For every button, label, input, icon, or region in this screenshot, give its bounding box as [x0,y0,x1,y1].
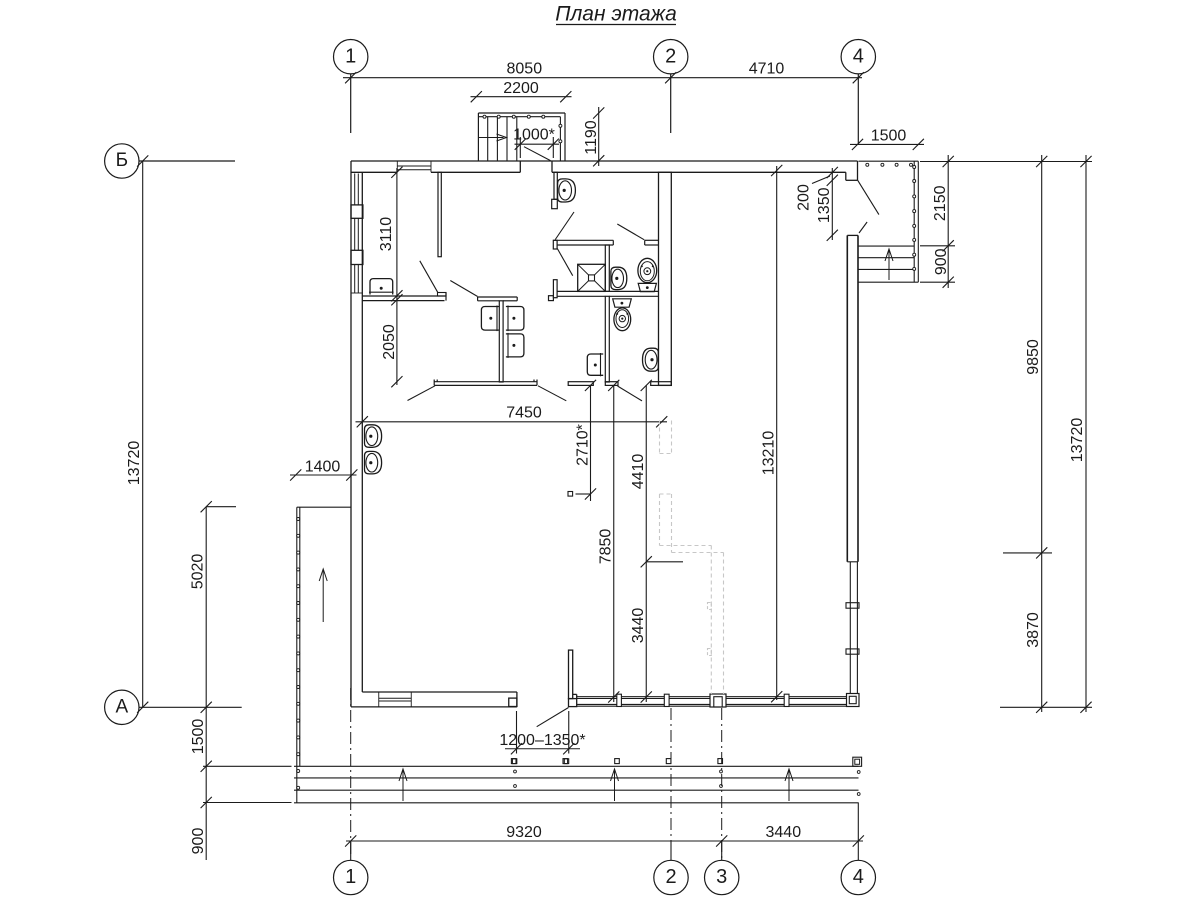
svg-text:А: А [115,697,128,718]
svg-text:1400: 1400 [305,459,341,476]
svg-text:1000*: 1000* [513,126,555,143]
svg-text:3870: 3870 [1025,612,1042,648]
svg-text:9850: 9850 [1025,339,1042,375]
svg-text:4710: 4710 [749,61,785,78]
svg-text:900: 900 [933,248,950,275]
svg-text:3440: 3440 [630,608,647,644]
svg-text:4: 4 [853,45,864,67]
svg-text:1: 1 [345,866,356,888]
svg-text:9320: 9320 [506,824,542,841]
svg-text:4410: 4410 [630,454,647,490]
svg-text:200: 200 [796,184,813,211]
svg-text:8050: 8050 [507,61,543,78]
svg-text:1350: 1350 [816,187,833,223]
svg-text:План этажа: План этажа [555,3,677,26]
svg-text:1500: 1500 [190,719,207,755]
svg-text:5020: 5020 [190,554,207,590]
svg-text:1: 1 [345,45,356,67]
svg-text:2: 2 [665,45,676,67]
svg-text:2: 2 [665,866,676,888]
svg-text:7450: 7450 [506,405,542,422]
svg-text:13720: 13720 [126,441,143,486]
svg-text:1200–1350*: 1200–1350* [499,732,585,749]
svg-text:900: 900 [190,828,207,855]
svg-text:7850: 7850 [598,529,615,565]
svg-text:13210: 13210 [760,431,777,476]
svg-text:3110: 3110 [378,217,395,252]
svg-text:Б: Б [116,150,128,171]
svg-text:4: 4 [853,866,864,888]
svg-text:1190: 1190 [583,120,600,155]
svg-text:3440: 3440 [766,824,802,841]
svg-text:2710*: 2710* [574,424,591,466]
svg-text:2050: 2050 [381,324,398,360]
svg-text:2150: 2150 [932,185,949,221]
svg-text:13720: 13720 [1069,418,1086,463]
svg-text:3: 3 [716,866,727,888]
svg-text:2200: 2200 [503,80,539,97]
svg-text:1500: 1500 [871,128,907,145]
